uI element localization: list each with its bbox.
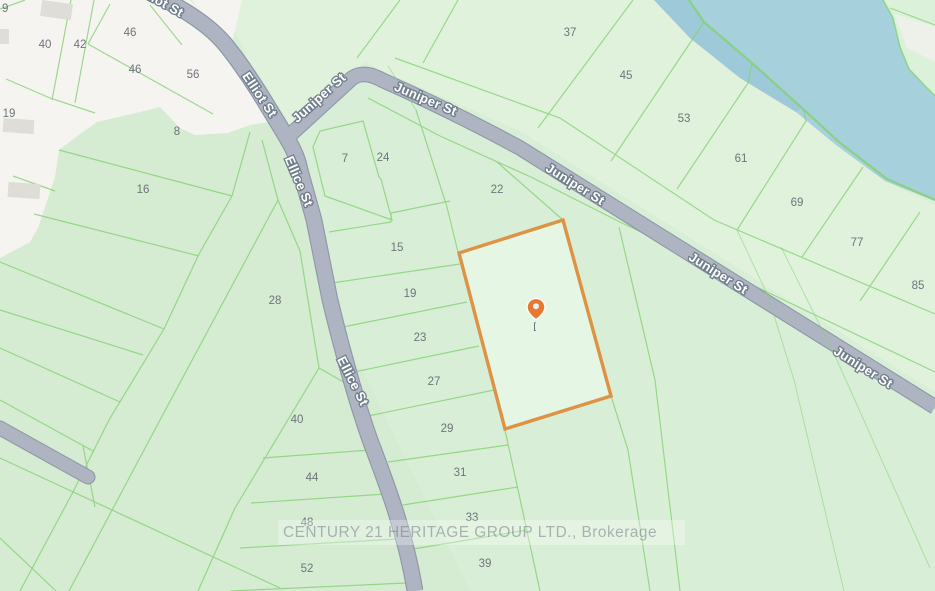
svg-text:52: 52	[301, 563, 314, 575]
svg-text:29: 29	[441, 423, 454, 435]
svg-text:8: 8	[174, 126, 180, 138]
svg-text:39: 39	[479, 558, 492, 570]
svg-text:46: 46	[124, 27, 137, 39]
svg-text:24: 24	[377, 152, 390, 164]
svg-text:22: 22	[491, 184, 504, 196]
svg-text:27: 27	[428, 376, 441, 388]
svg-text:77: 77	[851, 237, 864, 249]
svg-text:53: 53	[678, 113, 691, 125]
svg-text:45: 45	[620, 70, 633, 82]
svg-text:7: 7	[342, 153, 348, 165]
svg-text:16: 16	[137, 184, 150, 196]
svg-text:CENTURY 21 HERITAGE GROUP LTD.: CENTURY 21 HERITAGE GROUP LTD., Brokerag…	[283, 524, 657, 541]
svg-text:69: 69	[791, 197, 804, 209]
svg-text:56: 56	[187, 69, 200, 81]
svg-text:40: 40	[39, 39, 52, 51]
svg-text:37: 37	[564, 27, 577, 39]
svg-text:19: 19	[404, 288, 417, 300]
svg-text:44: 44	[306, 472, 319, 484]
svg-text:46: 46	[129, 64, 142, 76]
svg-text:42: 42	[74, 39, 87, 51]
svg-text:85: 85	[912, 280, 925, 292]
svg-text:31: 31	[454, 467, 467, 479]
svg-text:[: [	[534, 321, 537, 332]
svg-text:15: 15	[391, 242, 404, 254]
svg-text:23: 23	[414, 332, 427, 344]
svg-text:19: 19	[3, 108, 16, 120]
svg-text:28: 28	[269, 295, 282, 307]
svg-text:61: 61	[735, 153, 748, 165]
svg-text:9: 9	[2, 3, 8, 15]
svg-text:40: 40	[291, 414, 304, 426]
